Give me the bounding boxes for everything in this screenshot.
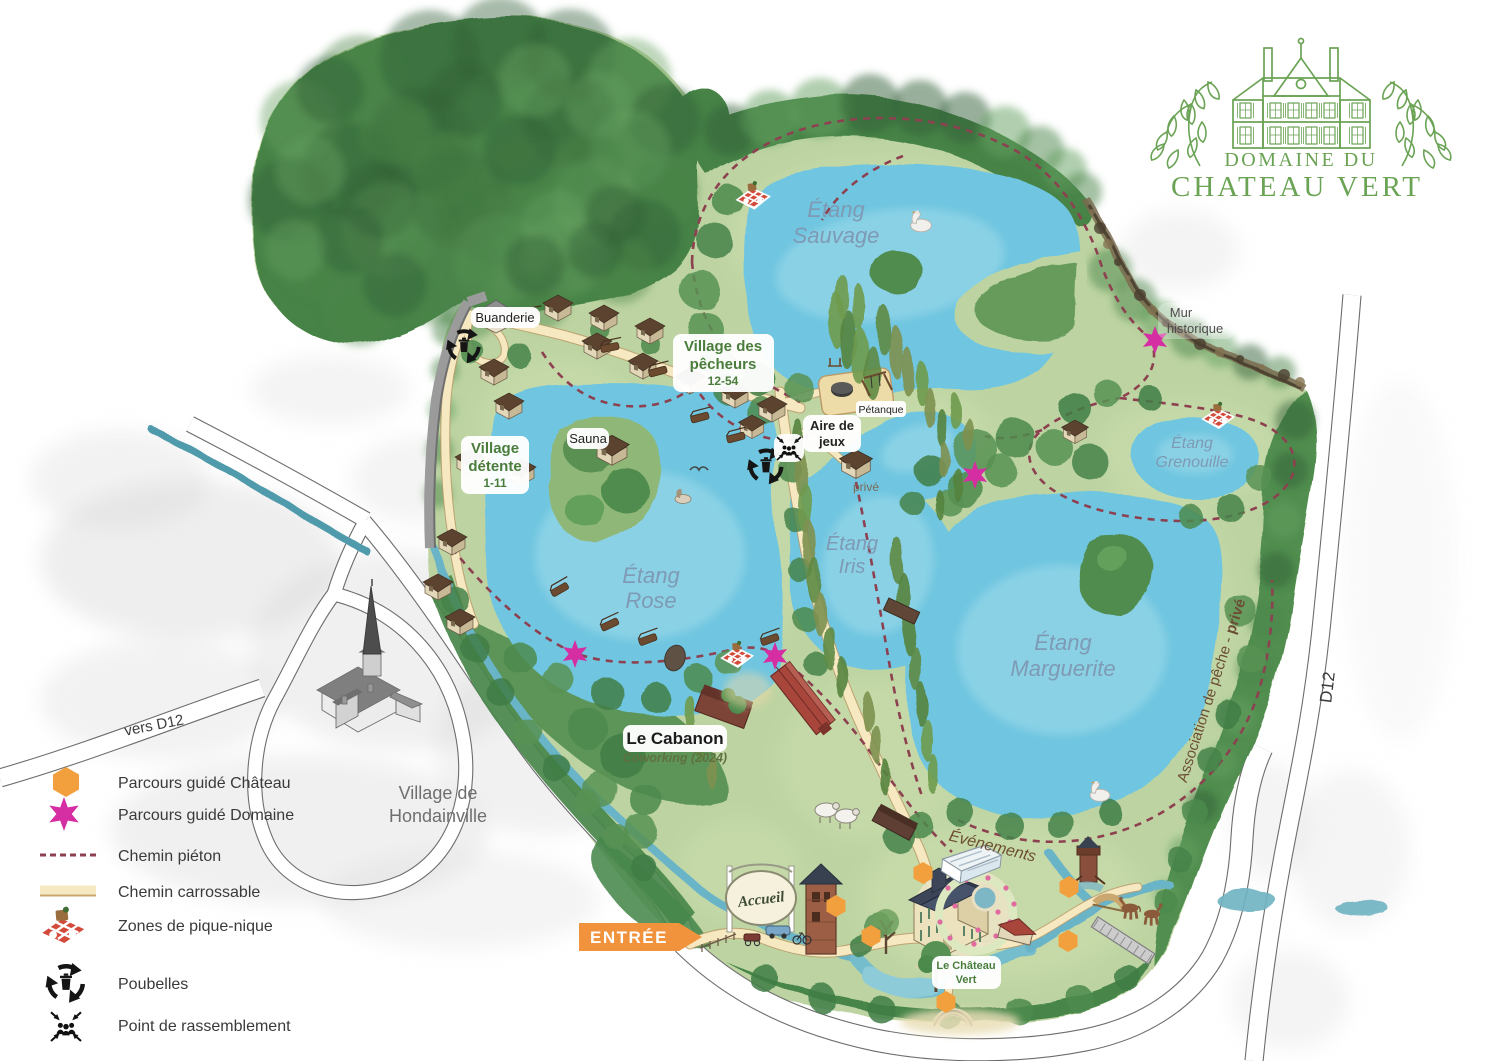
- svg-text:Village des: Village des: [684, 338, 762, 355]
- svg-text:DOMAINE DU: DOMAINE DU: [1224, 149, 1377, 171]
- svg-text:Étang: Étang: [826, 532, 878, 555]
- svg-text:12-54: 12-54: [708, 374, 739, 388]
- svg-text:pêcheurs: pêcheurs: [690, 356, 757, 373]
- svg-text:Le Château: Le Château: [936, 960, 995, 972]
- svg-text:Aire de: Aire de: [810, 418, 854, 433]
- svg-text:Buanderie: Buanderie: [475, 310, 534, 325]
- svg-text:Chemin piéton: Chemin piéton: [118, 848, 221, 865]
- svg-text:Coworking (2024): Coworking (2024): [623, 751, 727, 765]
- svg-text:Parcours guidé Château: Parcours guidé Château: [118, 775, 291, 792]
- svg-text:Chemin carrossable: Chemin carrossable: [118, 884, 260, 901]
- svg-text:Village: Village: [471, 440, 519, 457]
- svg-text:Rose: Rose: [625, 588, 676, 613]
- svg-text:Étang: Étang: [807, 197, 865, 222]
- svg-text:Sauna: Sauna: [569, 431, 607, 446]
- svg-text:CHATEAU VERT: CHATEAU VERT: [1171, 171, 1423, 203]
- svg-text:Grenouille: Grenouille: [1156, 454, 1229, 471]
- svg-text:D12: D12: [1316, 671, 1339, 704]
- svg-text:Parcours guidé Domaine: Parcours guidé Domaine: [118, 807, 294, 824]
- svg-text:Marguerite: Marguerite: [1010, 656, 1115, 681]
- svg-text:ENTRÉE: ENTRÉE: [590, 928, 668, 947]
- svg-text:Hondainville: Hondainville: [389, 806, 487, 826]
- svg-text:Mur: Mur: [1170, 305, 1193, 320]
- svg-text:historique: historique: [1167, 321, 1223, 336]
- svg-text:Pétanque: Pétanque: [859, 404, 904, 416]
- svg-text:Village de: Village de: [399, 783, 478, 803]
- svg-text:Sauvage: Sauvage: [793, 223, 880, 248]
- svg-text:détente: détente: [468, 458, 521, 475]
- svg-text:Vert: Vert: [956, 974, 977, 986]
- svg-text:Étang: Étang: [1034, 630, 1092, 655]
- svg-text:privé: privé: [853, 480, 879, 494]
- svg-text:Iris: Iris: [839, 556, 866, 578]
- svg-text:jeux: jeux: [818, 434, 846, 449]
- svg-text:Le Cabanon: Le Cabanon: [626, 729, 723, 748]
- svg-text:Étang: Étang: [1171, 433, 1213, 452]
- svg-text:Point de rassemblement: Point de rassemblement: [118, 1018, 291, 1035]
- svg-text:Zones de pique-nique: Zones de pique-nique: [118, 918, 273, 935]
- svg-text:1-11: 1-11: [483, 476, 507, 490]
- svg-text:Étang: Étang: [622, 563, 680, 588]
- svg-text:Poubelles: Poubelles: [118, 976, 188, 993]
